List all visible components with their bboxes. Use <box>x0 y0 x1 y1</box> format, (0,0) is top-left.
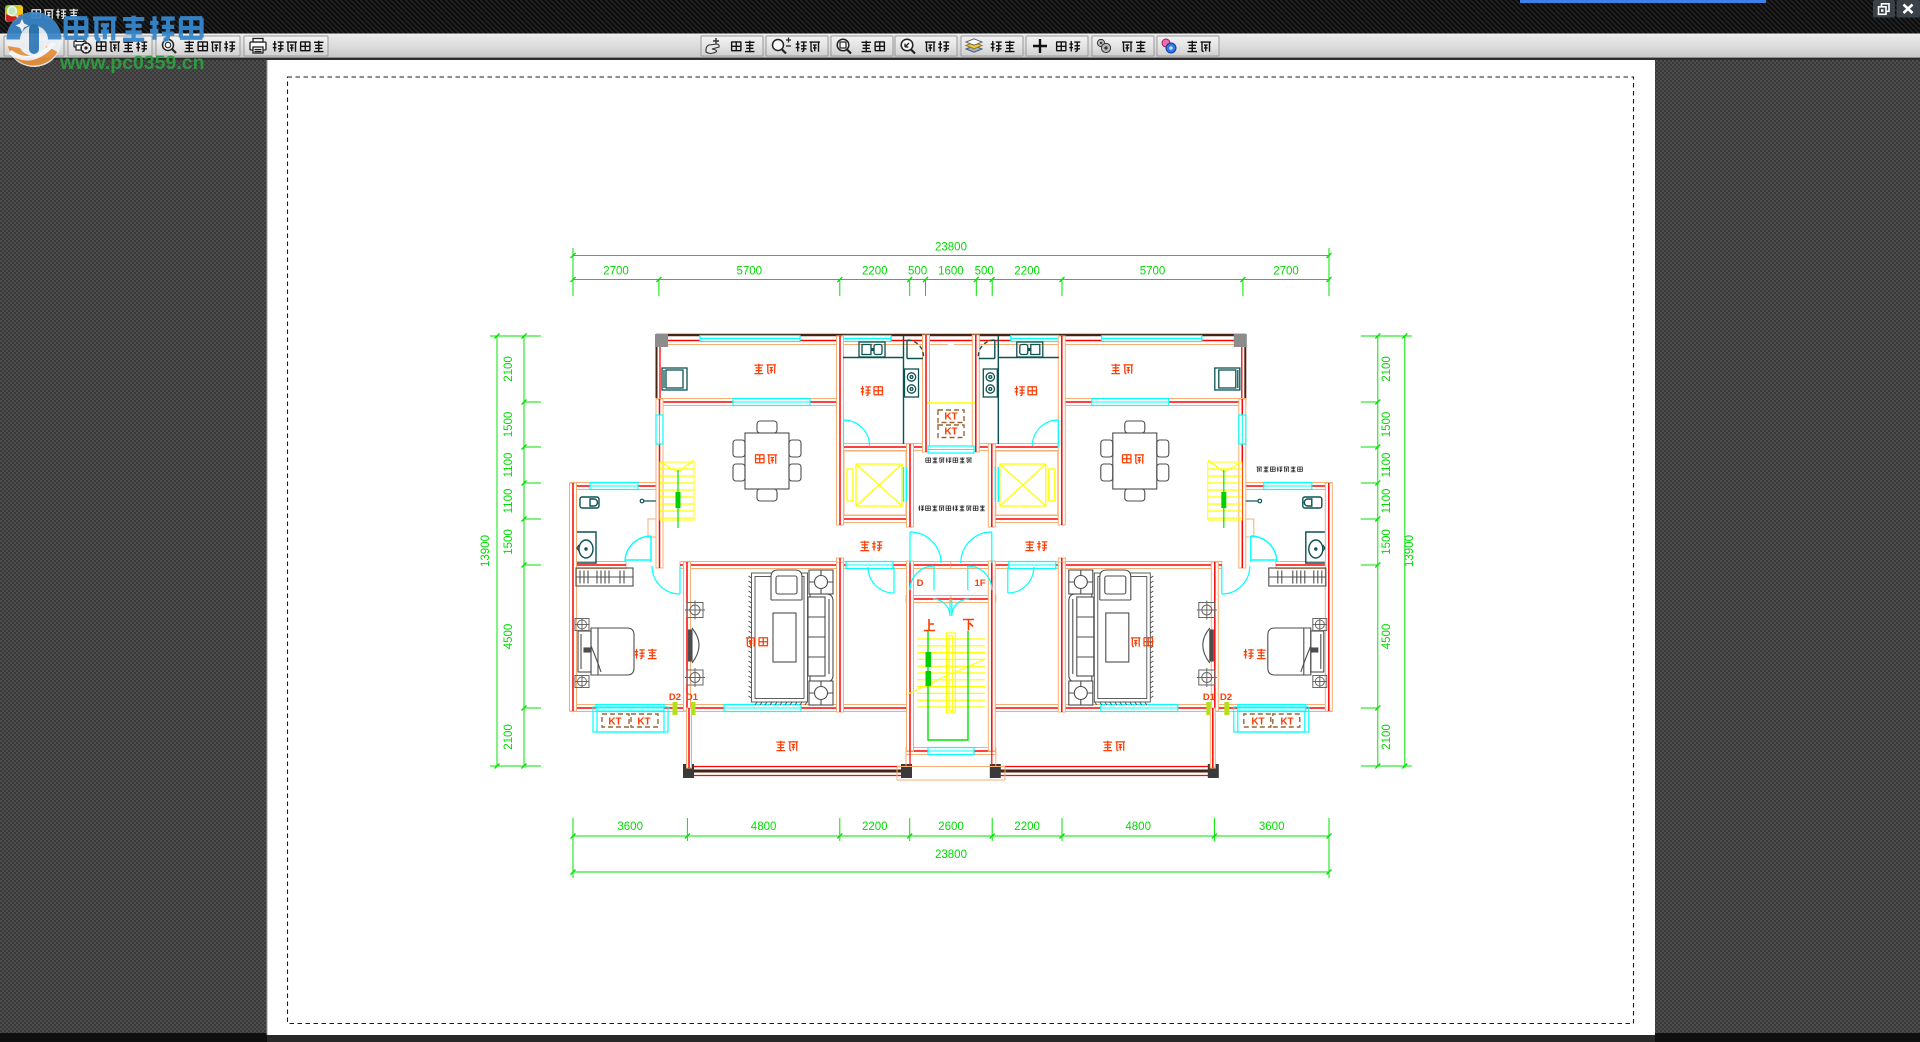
svg-text:2200: 2200 <box>1014 821 1040 833</box>
svg-text:3600: 3600 <box>617 821 643 833</box>
svg-text:4800: 4800 <box>751 821 777 833</box>
svg-text:23800: 23800 <box>935 849 967 861</box>
svg-text:2700: 2700 <box>1273 266 1299 278</box>
svg-text:D1: D1 <box>686 692 699 703</box>
svg-text:KT: KT <box>1280 717 1293 728</box>
svg-text:D1: D1 <box>1203 692 1216 703</box>
svg-text:1100: 1100 <box>1381 453 1393 478</box>
svg-text:23800: 23800 <box>935 242 967 254</box>
svg-text:2200: 2200 <box>1014 266 1040 278</box>
svg-text:1100: 1100 <box>503 453 515 478</box>
svg-text:1500: 1500 <box>1381 412 1393 438</box>
svg-text:2100: 2100 <box>1381 724 1393 750</box>
svg-text:1500: 1500 <box>503 412 515 438</box>
svg-text:4500: 4500 <box>503 624 515 650</box>
svg-text:1500: 1500 <box>1381 529 1393 555</box>
svg-text:4500: 4500 <box>1381 624 1393 650</box>
svg-text:2200: 2200 <box>862 821 888 833</box>
svg-text:3600: 3600 <box>1259 821 1285 833</box>
svg-text:5700: 5700 <box>737 266 763 278</box>
svg-text:www.pc0359.cn: www.pc0359.cn <box>59 52 205 74</box>
svg-text:D2: D2 <box>1220 692 1232 703</box>
svg-text:1600: 1600 <box>938 266 964 278</box>
svg-text:D2: D2 <box>669 692 681 703</box>
svg-text:KT: KT <box>608 717 621 728</box>
svg-text:1F: 1F <box>974 578 985 589</box>
svg-text:2100: 2100 <box>503 356 515 382</box>
svg-text:1100: 1100 <box>503 489 515 514</box>
svg-text:500: 500 <box>908 266 927 278</box>
svg-text:2100: 2100 <box>503 724 515 750</box>
svg-text:D: D <box>917 578 924 589</box>
svg-text:1100: 1100 <box>1381 489 1393 514</box>
svg-text:1500: 1500 <box>503 529 515 555</box>
svg-text:2200: 2200 <box>862 266 888 278</box>
svg-text:2100: 2100 <box>1381 356 1393 382</box>
svg-text:KT: KT <box>944 412 957 423</box>
svg-text:KT: KT <box>944 427 957 438</box>
svg-text:4800: 4800 <box>1125 821 1151 833</box>
svg-text:2600: 2600 <box>938 821 964 833</box>
svg-text:KT: KT <box>637 717 650 728</box>
svg-text:13900: 13900 <box>480 535 492 567</box>
svg-text:5700: 5700 <box>1140 266 1166 278</box>
svg-text:2700: 2700 <box>603 266 629 278</box>
svg-text:KT: KT <box>1251 717 1264 728</box>
svg-text:500: 500 <box>975 266 994 278</box>
svg-text:13900: 13900 <box>1404 535 1416 567</box>
